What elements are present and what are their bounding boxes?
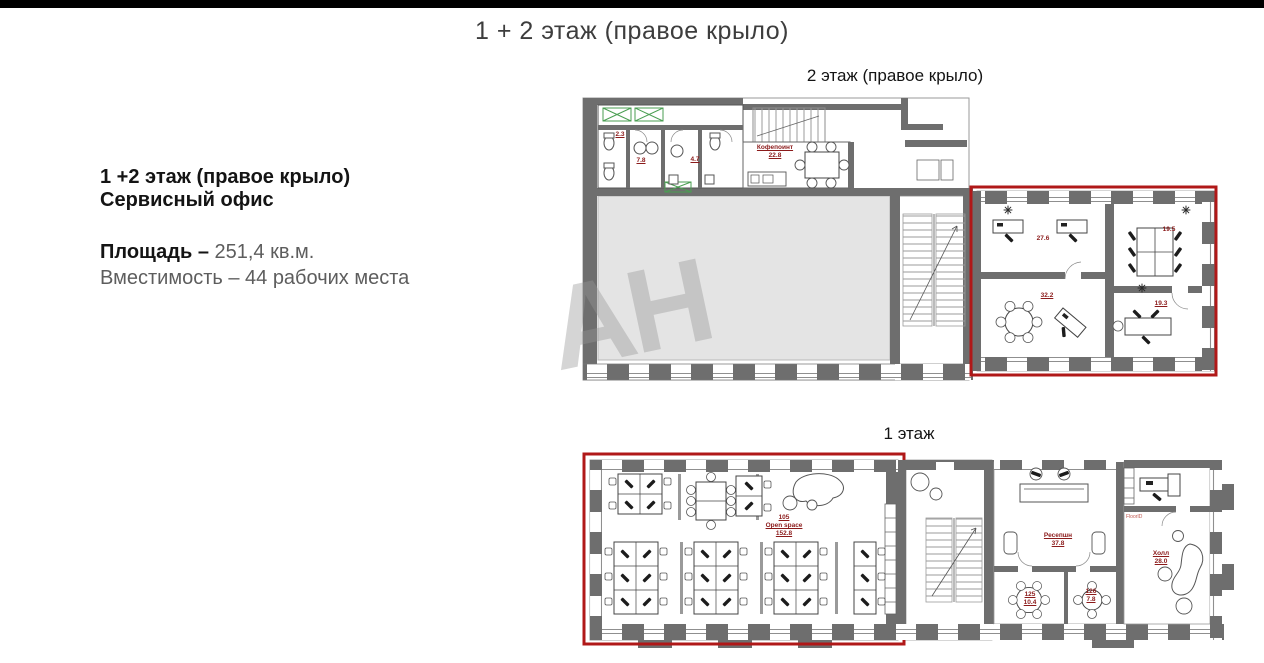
hall-area: 28.0 (1155, 558, 1168, 565)
room-label-hall: Холл 28.0 (1153, 550, 1169, 566)
hall-name: Холл (1153, 550, 1169, 557)
area-value: 251,4 кв.м. (209, 241, 314, 263)
floor2-plan: 2.3 7.8 4.7 Кофепоинт 22.8 27.6 19.5 32.… (565, 96, 1220, 388)
page-title: 1 + 2 этаж (правое крыло) (0, 17, 1264, 46)
openspace-name: Open space (766, 522, 803, 529)
openspace-area: 152.8 (776, 530, 792, 537)
reception-area: 37.8 (1052, 540, 1065, 547)
room-125-area: 10.4 (1024, 599, 1037, 606)
coffee-name: Кофепоинт (757, 144, 793, 151)
room-label-wc-left: 7.8 (636, 157, 645, 165)
floor2-annex (971, 187, 1216, 375)
room-label-office-d: 19.3 (1155, 300, 1168, 308)
floor1-heading: 1 этаж (580, 424, 1238, 444)
info-area-line: Площадь – 251,4 кв.м. (100, 239, 540, 265)
room-label-126: 126 7.8 (1086, 588, 1097, 604)
info-line-1: 1 +2 этаж (правое крыло) (100, 166, 540, 189)
room-126-number: 126 (1086, 588, 1097, 595)
room-125-number: 125 (1025, 591, 1036, 598)
info-spacer (100, 212, 540, 239)
floor2-stairs-top (753, 108, 825, 142)
reception-name: Ресепшн (1044, 532, 1072, 539)
slide-canvas: 1 + 2 этаж (правое крыло) 1 +2 этаж (пра… (0, 0, 1264, 663)
info-capacity-line: Вместимость – 44 рабочих места (100, 265, 540, 291)
room-label-office-a: 27.6 (1037, 235, 1050, 243)
room-label-coffee: Кофепоинт 22.8 (757, 144, 793, 160)
floor1-openspace (584, 454, 904, 648)
room-label-reception: Ресепшн 37.8 (1044, 532, 1072, 548)
reception-sofa (1020, 484, 1088, 502)
coffee-area: 22.8 (769, 152, 782, 159)
info-line-2: Сервисный офис (100, 189, 540, 212)
room-label-125: 125 10.4 (1024, 591, 1037, 607)
room-label-openspace: 105 Open space 152.8 (766, 514, 803, 538)
floor1-stairwell (898, 460, 994, 640)
area-label: Площадь – (100, 241, 209, 263)
room-label-wc-small: 2.3 (615, 131, 624, 139)
room-label-office-c: 32.2 (1041, 292, 1054, 300)
room-126-area: 7.8 (1086, 596, 1095, 603)
room-label-office-b: 19.5 (1163, 226, 1176, 234)
floor2-plan-svg (565, 96, 1220, 388)
floor2-stairwell (890, 188, 973, 380)
room-label-wc-right: 4.7 (690, 156, 699, 164)
floor2-heading: 2 этаж (правое крыло) (565, 66, 1225, 86)
info-block: 1 +2 этаж (правое крыло) Сервисный офис … (100, 166, 540, 291)
floor1-plan-svg (580, 448, 1238, 650)
top-black-bar (0, 0, 1264, 8)
floor1-hall-block (1124, 460, 1234, 640)
floor2-bathrooms (598, 105, 743, 192)
openspace-number: 105 (779, 514, 790, 521)
floor1-plan: 105 Open space 152.8 Ресепшн 37.8 125 10… (580, 448, 1238, 650)
floor-id-mark: FloorID (1126, 514, 1142, 520)
